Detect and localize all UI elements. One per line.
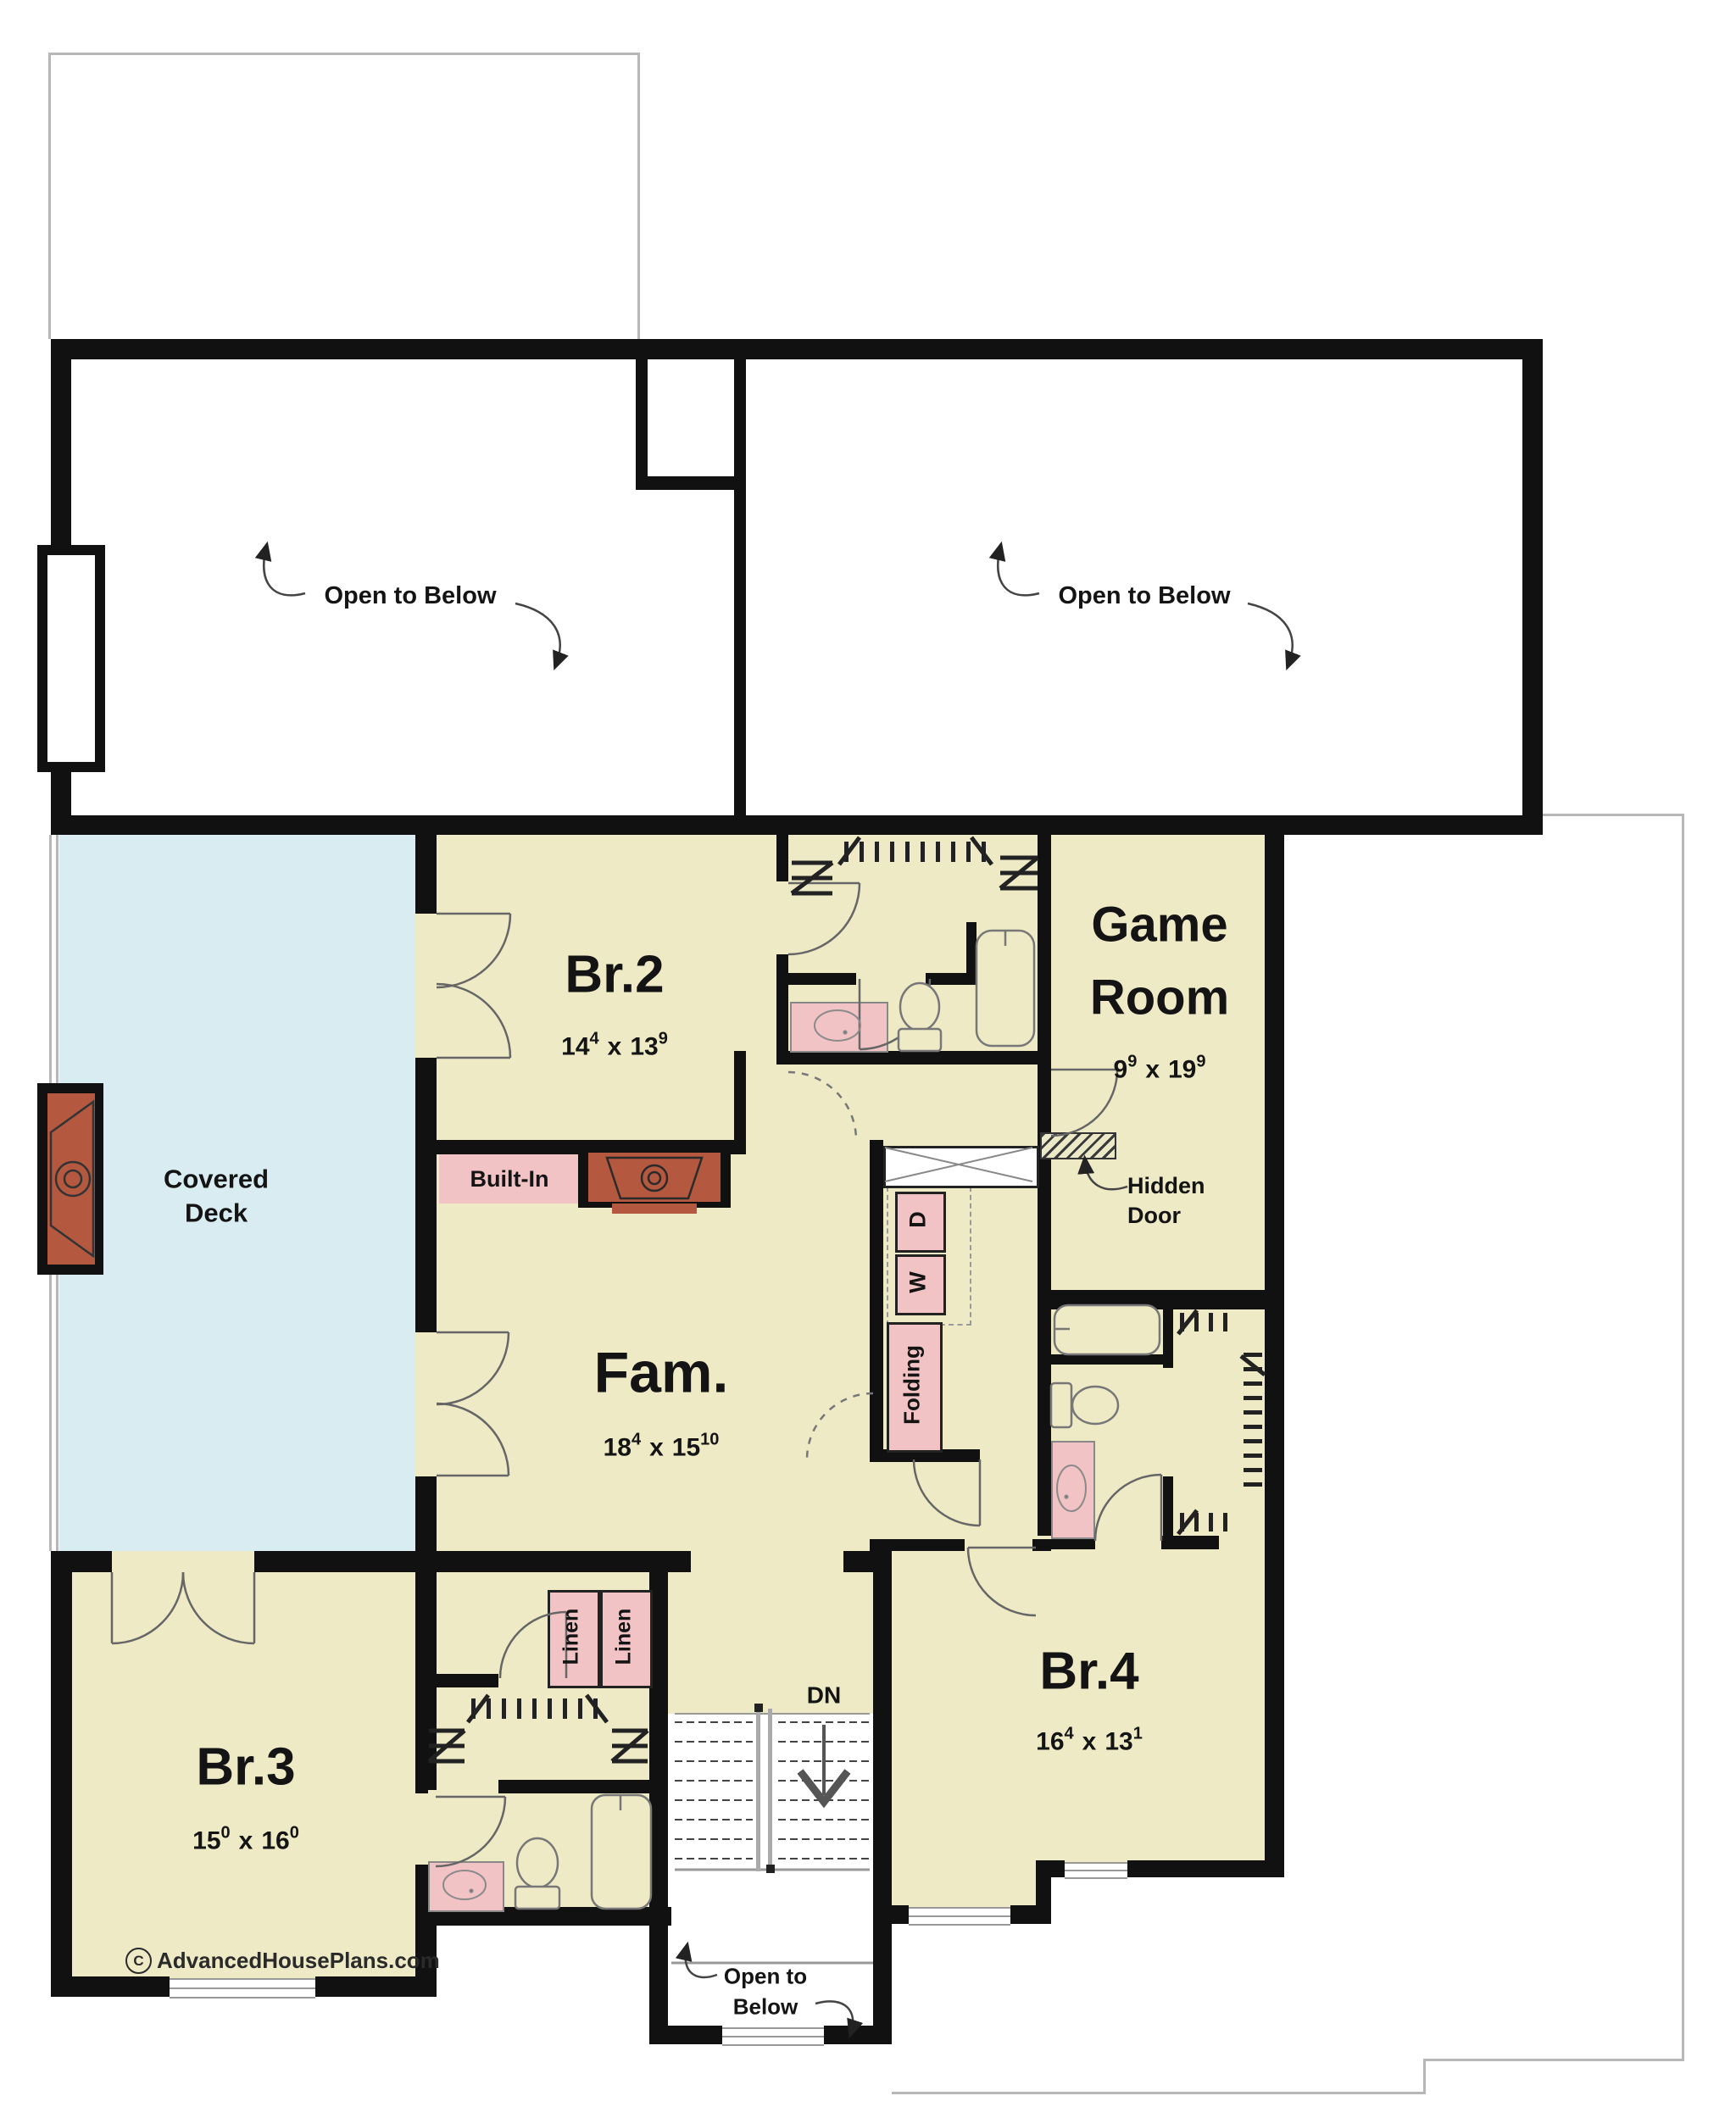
hidden-door-panel bbox=[1040, 1132, 1116, 1159]
window bbox=[909, 1907, 1010, 1926]
laundry-chute-box bbox=[883, 1146, 1039, 1188]
watermark-text: AdvancedHousePlans.com bbox=[157, 1948, 440, 1974]
stair-open-label-line2: Below bbox=[733, 1995, 798, 2018]
hidden-door-line2: Door bbox=[1127, 1201, 1205, 1231]
vanity-bath3 bbox=[428, 1861, 504, 1912]
wall-segment bbox=[415, 1674, 498, 1687]
stair-open-label-line1: Open to bbox=[724, 1965, 807, 1987]
br3-dimensions: 150x160 bbox=[192, 1827, 299, 1854]
wall-segment bbox=[254, 1551, 437, 1572]
fam-label: Fam. bbox=[594, 1343, 729, 1403]
wall-segment bbox=[1032, 1539, 1051, 1551]
roof-outline-line bbox=[1543, 814, 1683, 816]
wall-segment bbox=[824, 2026, 892, 2044]
wall-segment bbox=[734, 1051, 746, 1154]
game-room-dimensions: 99x199 bbox=[1114, 1056, 1206, 1083]
wall-segment bbox=[1036, 1860, 1065, 1877]
br3-label: Br.3 bbox=[196, 1739, 295, 1794]
roof-outline-line bbox=[1424, 2059, 1683, 2061]
wall-segment bbox=[51, 1551, 72, 1997]
open-to-below-right-label: Open to Below bbox=[1059, 583, 1231, 609]
window bbox=[722, 2027, 824, 2046]
floor-plan: Open to Below Open to Below Covered Deck… bbox=[0, 0, 1736, 2118]
wall-segment bbox=[51, 339, 1543, 359]
open-to-below-left-label: Open to Below bbox=[325, 583, 497, 609]
tv-built-in-ledge bbox=[612, 1204, 697, 1214]
dryer-label: D bbox=[905, 1211, 932, 1228]
roof-outline-line bbox=[48, 53, 51, 339]
wall-segment bbox=[776, 954, 788, 1058]
chimney-chase-inner bbox=[47, 555, 95, 762]
wall-segment bbox=[1265, 835, 1284, 1876]
hidden-door-label: Hidden Door bbox=[1127, 1171, 1205, 1231]
br4-dimensions: 164x131 bbox=[1036, 1728, 1143, 1755]
roof-outline-line bbox=[1682, 814, 1684, 2061]
wall-segment bbox=[415, 1780, 428, 1793]
wall-segment bbox=[498, 1780, 653, 1793]
wall-segment bbox=[776, 835, 788, 881]
game-room-label-line1: Game bbox=[1091, 900, 1227, 952]
wall-segment bbox=[966, 922, 976, 973]
roof-outline-line bbox=[637, 53, 640, 339]
wall-segment bbox=[788, 973, 856, 985]
covered-deck-line2: Deck bbox=[185, 1200, 248, 1228]
vanity-bath1 bbox=[790, 1002, 888, 1053]
wall-segment bbox=[734, 339, 746, 835]
roof-outline-line bbox=[48, 53, 640, 55]
br2-dimensions: 144x139 bbox=[561, 1033, 668, 1060]
wall-segment bbox=[873, 1551, 892, 2044]
br4-area-west bbox=[870, 1551, 1051, 1907]
roof-outline-line bbox=[892, 2092, 1426, 2094]
wall-segment bbox=[843, 1551, 873, 1572]
br4-area-east bbox=[1051, 1551, 1284, 1877]
wall-segment bbox=[653, 2026, 722, 2044]
linen2-label: Linen bbox=[612, 1609, 637, 1665]
wall-segment bbox=[437, 1551, 691, 1572]
linen1-label: Linen bbox=[559, 1609, 584, 1665]
wall-segment bbox=[1127, 1860, 1284, 1877]
hidden-door-line1: Hidden bbox=[1127, 1171, 1205, 1201]
built-in-label: Built-In bbox=[470, 1167, 549, 1191]
br2-label: Br.2 bbox=[565, 947, 664, 1002]
wall-segment bbox=[870, 1140, 883, 1462]
wall-segment bbox=[1051, 1354, 1163, 1365]
wall-segment bbox=[873, 1905, 909, 1924]
deck-fireplace bbox=[47, 1093, 95, 1265]
folding-label: Folding bbox=[899, 1345, 926, 1425]
window bbox=[1065, 1862, 1127, 1879]
wall-segment bbox=[415, 1058, 437, 1332]
watermark: C AdvancedHousePlans.com bbox=[125, 1948, 440, 1974]
covered-deck-line1: Covered bbox=[164, 1166, 269, 1194]
wall-segment bbox=[1163, 1476, 1173, 1549]
stair-hall bbox=[671, 1602, 873, 1714]
wall-segment bbox=[415, 835, 437, 914]
wall-segment bbox=[636, 476, 746, 490]
wall-segment bbox=[1038, 1290, 1284, 1309]
copyright-icon: C bbox=[125, 1948, 152, 1974]
br4-label: Br.4 bbox=[1039, 1643, 1138, 1698]
window bbox=[170, 1978, 315, 1998]
wall-segment bbox=[1038, 835, 1051, 1132]
tv-built-in bbox=[588, 1153, 721, 1202]
fam-dimensions: 184x1510 bbox=[604, 1434, 720, 1461]
washer-label: W bbox=[905, 1271, 932, 1292]
vanity-bath2 bbox=[1051, 1441, 1095, 1539]
wall-segment bbox=[1522, 339, 1543, 835]
stairs-down-label: DN bbox=[807, 1682, 841, 1707]
wall-segment bbox=[926, 973, 976, 985]
wall-segment bbox=[870, 1539, 965, 1551]
game-room-label-line2: Room bbox=[1090, 973, 1229, 1025]
roof-outline-line bbox=[1423, 2059, 1426, 2094]
wall-segment bbox=[51, 1976, 170, 1997]
wall-segment bbox=[776, 1051, 1051, 1065]
wall-segment bbox=[51, 815, 1543, 835]
wall-segment bbox=[1038, 1309, 1051, 1536]
wall-segment bbox=[1163, 1305, 1173, 1368]
wall-segment bbox=[636, 359, 648, 490]
